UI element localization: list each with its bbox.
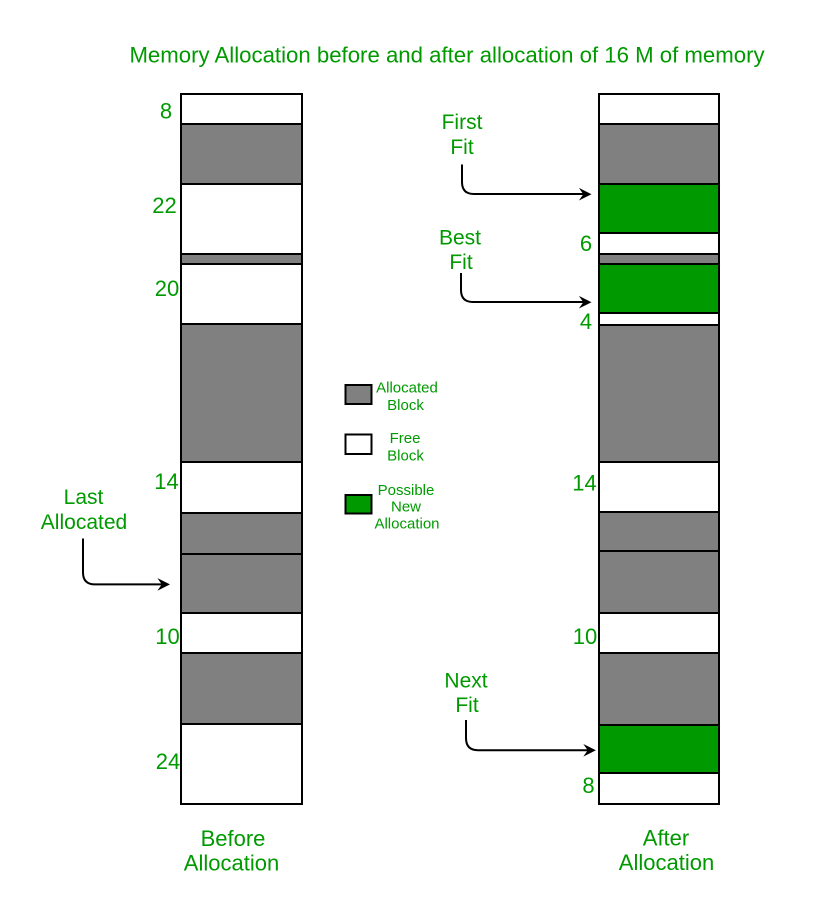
svg-text:First: First — [442, 111, 483, 134]
svg-text:Allocation: Allocation — [619, 850, 714, 875]
svg-text:Allocation: Allocation — [184, 851, 279, 876]
svg-text:Next: Next — [444, 670, 487, 693]
svg-text:10: 10 — [155, 624, 179, 649]
svg-text:10: 10 — [573, 624, 597, 649]
svg-text:Allocation: Allocation — [374, 516, 439, 533]
svg-text:After: After — [643, 826, 689, 851]
svg-text:Block: Block — [387, 397, 424, 414]
svg-text:Allocated: Allocated — [376, 380, 438, 397]
svg-text:4: 4 — [580, 309, 592, 334]
svg-text:Free: Free — [390, 430, 421, 447]
svg-text:Last: Last — [64, 486, 104, 509]
svg-text:Allocated: Allocated — [41, 511, 127, 534]
svg-text:Best: Best — [439, 227, 481, 250]
svg-text:14: 14 — [154, 469, 178, 494]
svg-text:8: 8 — [582, 773, 594, 798]
svg-text:6: 6 — [580, 231, 592, 256]
svg-text:22: 22 — [152, 193, 176, 218]
svg-text:Fit: Fit — [449, 251, 472, 274]
svg-text:24: 24 — [156, 749, 180, 774]
svg-text:New: New — [391, 499, 421, 516]
svg-text:8: 8 — [160, 99, 172, 124]
svg-text:Before: Before — [201, 826, 266, 851]
svg-text:Possible: Possible — [378, 482, 435, 499]
svg-text:Block: Block — [387, 448, 424, 465]
svg-text:Fit: Fit — [450, 136, 473, 159]
svg-text:Fit: Fit — [455, 694, 478, 717]
svg-text:Memory Allocation before and a: Memory Allocation before and after alloc… — [129, 43, 765, 68]
svg-text:14: 14 — [572, 471, 596, 496]
svg-text:20: 20 — [155, 276, 179, 301]
